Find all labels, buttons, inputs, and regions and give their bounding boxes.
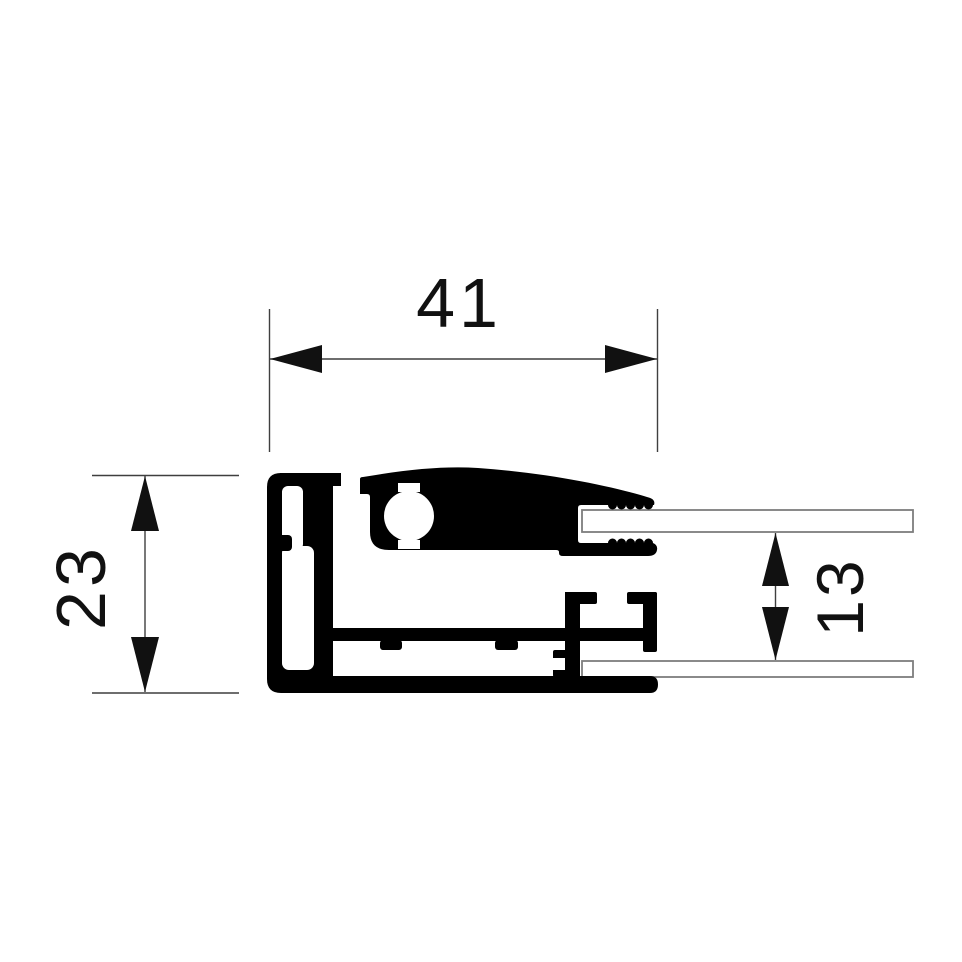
web-tab-left [380,640,402,650]
profile-technical-drawing: 41 23 13 [0,0,962,962]
profile-top-wall [280,473,341,486]
screw-channel-slit-top [398,483,420,492]
upper-glass-panel [582,510,913,532]
gap-dimension-label: 13 [803,557,877,636]
tube-slot-bump [278,535,292,551]
panel-stop-notch [549,658,565,670]
profile-bottom-wall [330,676,658,693]
lower-glass-panel [582,661,913,677]
arrowhead-left-icon [270,345,322,373]
arrowhead-right-icon [605,345,657,373]
screw-channel-slit-bottom [398,540,420,549]
height-dimension-label: 23 [42,544,120,630]
technical-drawing-canvas: 41 23 13 [0,0,962,962]
arrowhead-down-icon [131,637,159,692]
profile-bottom-web [330,628,657,641]
dimension-height: 23 [42,476,239,694]
channel-right-leg [643,592,657,652]
screw-channel-hole [384,491,434,541]
arrowhead-down-icon [762,607,789,660]
width-dimension-label: 41 [416,264,502,342]
profile-cross-section [267,467,658,693]
arrowhead-up-icon [762,533,789,586]
dimension-panel-gap: 13 [762,533,877,660]
web-tab-right [495,640,518,650]
arrowhead-up-icon [131,476,159,531]
dimension-width: 41 [270,264,658,452]
tube-slot-lower [282,546,314,670]
